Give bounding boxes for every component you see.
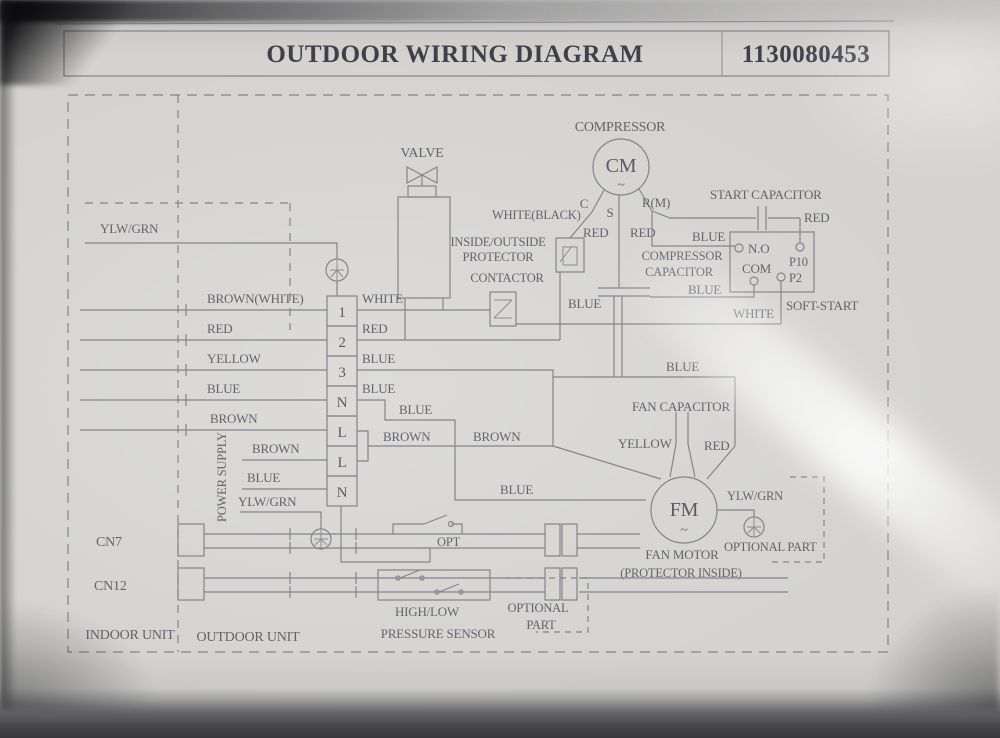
wire-capacitor-drop <box>614 296 622 377</box>
label-fan-yellow: YELLOW <box>618 436 673 451</box>
terminal-l1: L <box>338 425 347 441</box>
label-soft-start: SOFT-START <box>786 298 859 313</box>
protector-symbol <box>556 238 584 272</box>
cn12-plug-b <box>562 568 577 600</box>
label-term-s: S <box>606 205 613 220</box>
label-mid-brown2: BROWN <box>473 429 521 444</box>
label-wire-blue: BLUE <box>207 381 240 396</box>
label-p10: P10 <box>789 255 808 269</box>
label-cn12: CN12 <box>94 579 127 594</box>
earth-wire-top <box>85 243 337 296</box>
cn7-plug-a <box>545 524 560 556</box>
cn7-plug-b <box>562 524 577 556</box>
label-protector-2: PROTECTOR <box>463 250 535 264</box>
terminal-l2: L <box>338 455 347 471</box>
label-mid-blue2: BLUE <box>500 482 533 497</box>
cn7-wires <box>204 534 545 548</box>
label-contactor: CONTACTOR <box>470 271 544 285</box>
start-capacitor-plates <box>758 206 766 230</box>
label-wire-yellow: YELLOW <box>207 351 262 366</box>
photo-corner-bottom-left <box>0 600 160 710</box>
fan-capacitor-plates <box>676 412 688 444</box>
cn12-wires <box>204 578 545 592</box>
ground-symbol-power <box>311 529 331 549</box>
terminal-n1: N <box>337 395 348 411</box>
label-ylwgrn-top: YLW/GRN <box>100 221 159 236</box>
label-right-red: RED <box>362 321 387 336</box>
label-right-white: WHITE <box>362 291 403 306</box>
label-optional-part-right: OPTIONAL PART <box>724 540 817 554</box>
label-valve: VALVE <box>400 146 443 161</box>
cn12-wire-ticks <box>290 572 356 598</box>
ground-symbol-top <box>326 259 348 281</box>
label-ps-ylwgrn: YLW/GRN <box>238 494 297 509</box>
terminal-block: 1 2 3 N L L N <box>327 296 357 506</box>
label-optional-1: OPTIONAL <box>508 601 569 615</box>
label-protector-1: INSIDE/OUTSIDE <box>450 235 546 249</box>
label-term-c: C <box>580 196 588 211</box>
fan-motor-fm: FM <box>670 499 699 521</box>
label-cn7: CN7 <box>96 535 122 550</box>
cn7-connector <box>178 524 204 556</box>
contactor-symbol <box>490 292 516 326</box>
label-optional-2: PART <box>526 618 556 632</box>
label-fan-motor: FAN MOTOR <box>645 547 719 562</box>
label-wire-brown: BROWN <box>210 411 258 426</box>
soft-start-box: N.O COM P10 P2 <box>730 232 814 292</box>
label-wire-red: RED <box>207 321 232 336</box>
label-outdoor-unit: OUTDOOR UNIT <box>197 630 301 645</box>
label-power-supply: POWER SUPPLY <box>215 432 229 522</box>
fan-capacitor-leads <box>670 444 695 477</box>
cn12-connector <box>178 568 204 600</box>
valve-leads <box>405 298 443 340</box>
terminal-3: 3 <box>338 365 345 381</box>
ground-symbol-fan <box>744 517 764 537</box>
label-com: COM <box>742 261 772 276</box>
wire-blue-row <box>357 370 553 377</box>
label-red-s: RED <box>583 225 608 240</box>
label-ps-brown: BROWN <box>252 441 300 456</box>
label-blue-drop: BLUE <box>568 296 601 311</box>
label-opt: OPT <box>437 535 461 549</box>
photo-corner-top-left <box>0 0 190 85</box>
label-fan-capacitor: FAN CAPACITOR <box>632 399 730 414</box>
label-blue-no: BLUE <box>692 229 725 244</box>
label-mid-blue: BLUE <box>399 402 432 417</box>
pressure-sensor-box <box>378 570 490 600</box>
photo-corner-bottom-right <box>860 580 1000 710</box>
fan-motor-tilde: ~ <box>680 523 688 538</box>
label-start-capacitor: START CAPACITOR <box>710 187 822 202</box>
terminal-1: 1 <box>338 305 345 321</box>
fan-capacitor-funnel <box>553 377 735 479</box>
label-p2: P2 <box>789 271 802 285</box>
cn12-plug-a <box>545 568 560 600</box>
valve: VALVE <box>398 146 450 340</box>
cn7-wires-out <box>577 534 640 548</box>
compressor-tilde: ~ <box>617 178 625 193</box>
label-right-blue1: BLUE <box>362 351 395 366</box>
wire-start-cap <box>652 211 800 242</box>
terminal-n2: N <box>337 485 348 501</box>
label-ps-blue: BLUE <box>247 470 280 485</box>
label-ylwgrn-right: YLW/GRN <box>727 489 783 503</box>
label-pressure-sensor: PRESSURE SENSOR <box>381 626 496 641</box>
label-right-blue2: BLUE <box>362 381 395 396</box>
label-compressor: COMPRESSOR <box>575 120 666 135</box>
wire-fm-ground <box>717 510 754 517</box>
label-term-rm: R(M) <box>642 195 670 210</box>
label-high-low: HIGH/LOW <box>395 604 460 619</box>
terminal-2: 2 <box>338 335 345 351</box>
label-red-startcap: RED <box>804 210 829 225</box>
label-fan-red: RED <box>704 438 729 453</box>
valve-body <box>398 197 450 298</box>
compressor-cm: CM <box>606 155 637 177</box>
page-title: OUTDOOR WIRING DIAGRAM <box>266 41 643 68</box>
label-wire-brown-white: BROWN(WHITE) <box>207 291 304 306</box>
label-mid-brown: BROWN <box>383 429 431 444</box>
label-no: N.O <box>748 241 769 256</box>
glare-top-right <box>790 10 1000 180</box>
cn12-wires-out <box>579 578 788 592</box>
opt-switch <box>393 515 462 534</box>
label-white-black: WHITE(BLACK) <box>492 208 581 222</box>
